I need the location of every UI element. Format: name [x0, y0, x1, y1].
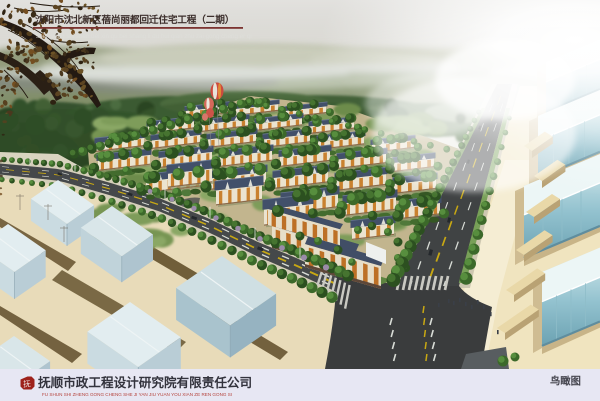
svg-text:shen yang shi shen bei xin qu: shen yang shi shen bei xin qu bei shang … [36, 33, 252, 40]
svg-text:沈阳市沈北新区蓓尚丽都回迁住宅工程（二期）: 沈阳市沈北新区蓓尚丽都回迁住宅工程（二期） [35, 13, 234, 26]
svg-text:抚顺市政工程设计研究院有限责任公司: 抚顺市政工程设计研究院有限责任公司 [38, 375, 252, 390]
svg-text:抚: 抚 [23, 378, 31, 388]
svg-text:鸟瞰图: 鸟瞰图 [550, 375, 581, 388]
svg-text:FU SHUN SHI ZHENG GONG CHENG S: FU SHUN SHI ZHENG GONG CHENG SHE JI YAN … [42, 392, 232, 397]
